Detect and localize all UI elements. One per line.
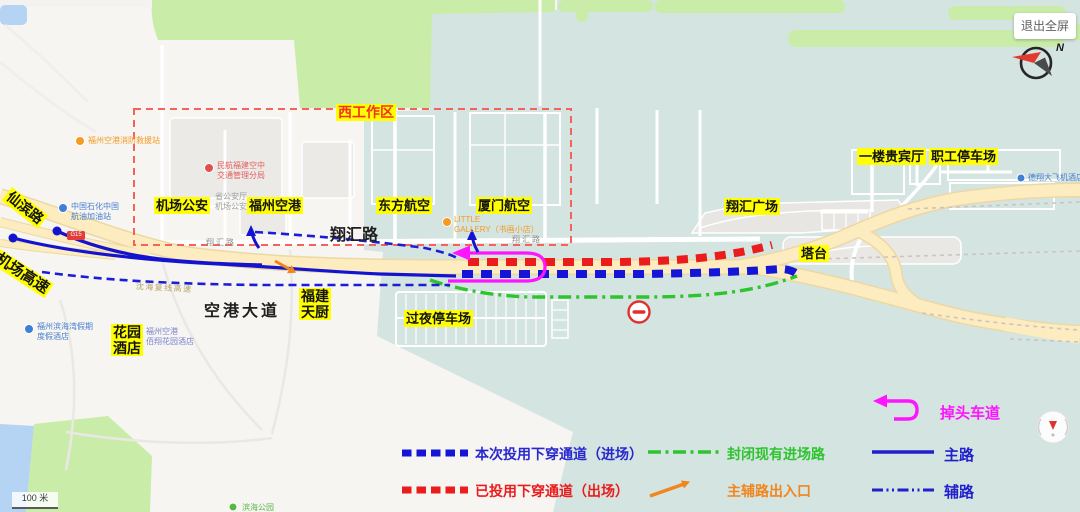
label-konggang-avenue: 空港大道 bbox=[204, 297, 280, 321]
label-garden-hotel: 花园 酒店 bbox=[111, 324, 143, 356]
small-label-xianghui-left: 翔汇路 bbox=[206, 237, 236, 248]
legend-ramp-label: 主辅路出入口 bbox=[727, 481, 811, 501]
legend-closed-road-label: 封闭现有进场路 bbox=[727, 444, 825, 464]
label-xiamen-airlines: 厦门航空 bbox=[476, 197, 532, 214]
label-overnight-parking: 过夜停车场 bbox=[404, 310, 473, 327]
poi-sinopec-line1: 中国石化中国 bbox=[71, 202, 119, 212]
mini-compass-icon[interactable] bbox=[1037, 411, 1069, 443]
exit-fullscreen-button[interactable]: 退出全屏 bbox=[1014, 13, 1076, 39]
label-staff-parking: 职工停车场 bbox=[929, 148, 998, 165]
legend-old-tunnel-label: 已投用下穿通道（出场） bbox=[475, 481, 629, 501]
poi-baixiang: 福州空港 佰翔花园酒店 bbox=[146, 327, 194, 346]
map-canvas[interactable] bbox=[0, 0, 1080, 512]
map-viewport[interactable]: 退出全屏 N 100 米 西工作区 机场公安 福州空港 东方航空 厦门航空 一楼… bbox=[0, 0, 1080, 512]
label-vip-hall: 一楼贵宾厅 bbox=[857, 148, 926, 165]
label-garden-hotel-line1: 花园 bbox=[113, 324, 141, 340]
poi-fire-station: 福州空港消防救援站 bbox=[88, 136, 160, 146]
label-fujian-tianchu-line2: 天厨 bbox=[301, 304, 329, 320]
poi-gallery-line1: LITTLE bbox=[454, 215, 539, 225]
label-fuzhou-airport: 福州空港 bbox=[247, 197, 303, 214]
poi-sinopec-line2: 航油加油站 bbox=[71, 212, 119, 222]
label-tower: 塔台 bbox=[799, 245, 829, 262]
label-eastern-airlines: 东方航空 bbox=[376, 197, 432, 214]
poi-resort-line1: 福州滨海湾假期 bbox=[37, 322, 93, 332]
poi-resort-line2: 度假酒店 bbox=[37, 332, 93, 342]
poi-sinopec: 中国石化中国 航油加油站 bbox=[71, 202, 119, 221]
poi-gallery-line2: GALLERY（书画小店） bbox=[454, 225, 539, 235]
label-fujian-tianchu-line1: 福建 bbox=[301, 288, 329, 304]
poi-gallery: LITTLE GALLERY（书画小店） bbox=[454, 215, 539, 234]
compass-north-label: N bbox=[1056, 42, 1064, 54]
label-xianghui-road: 翔汇路 bbox=[330, 221, 378, 245]
poi-hotel-right: 德翔大飞机酒店 bbox=[1028, 173, 1080, 183]
legend-aux-road-label: 辅路 bbox=[944, 481, 974, 502]
poi-baixiang-line2: 佰翔花园酒店 bbox=[146, 337, 194, 347]
legend-new-tunnel-label: 本次投用下穿通道（进场） bbox=[475, 444, 643, 464]
poi-green: 滨海公园 bbox=[242, 503, 274, 512]
west-work-area-label: 西工作区 bbox=[336, 104, 396, 121]
label-fujian-tianchu: 福建 天厨 bbox=[299, 288, 331, 320]
scale-bar: 100 米 bbox=[12, 492, 58, 509]
highway-number-badge: G15 bbox=[67, 231, 85, 240]
label-airport-police: 机场公安 bbox=[154, 197, 210, 214]
small-label-xianghui-mid: 翔汇路 bbox=[512, 234, 542, 245]
poi-atc: 民航福建空中 交通管理分局 bbox=[217, 161, 265, 180]
poi-atc-line2: 交通管理分局 bbox=[217, 171, 265, 181]
legend-uturn-label: 掉头车道 bbox=[940, 402, 1000, 423]
label-xianghui-plaza: 翔汇广场 bbox=[724, 198, 780, 215]
poi-resort: 福州滨海湾假期 度假酒店 bbox=[37, 322, 93, 341]
poi-atc-line1: 民航福建空中 bbox=[217, 161, 265, 171]
poi-baixiang-line1: 福州空港 bbox=[146, 327, 194, 337]
legend-main-road-label: 主路 bbox=[944, 444, 974, 465]
label-garden-hotel-line2: 酒店 bbox=[113, 340, 141, 356]
